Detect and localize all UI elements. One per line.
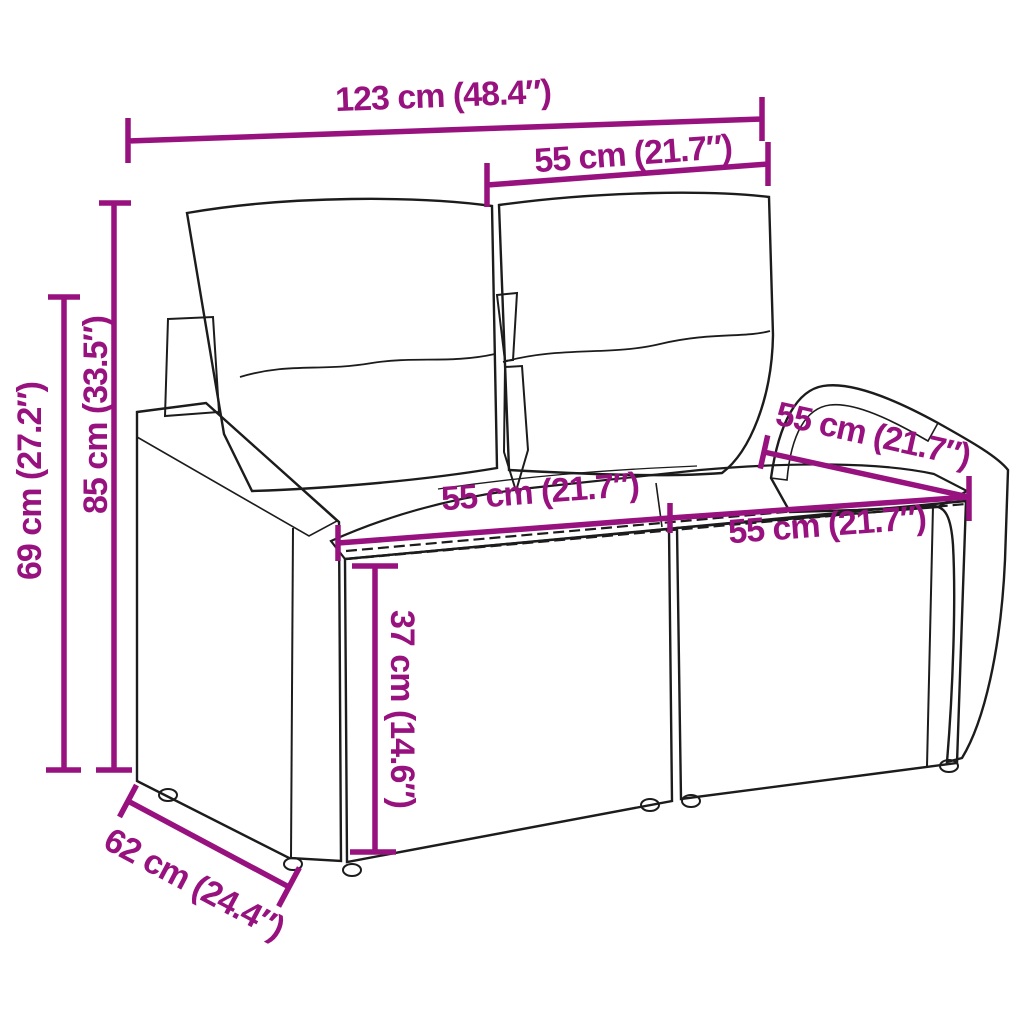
dimension-label-armrest-height: 69 cm (27.2″) [13,382,47,580]
back-cushion-right [499,193,773,475]
dimension-label-seat-height: 37 cm (14.6″) [385,610,419,808]
back-panel-strip-middle-top [497,293,517,361]
armrest-left-top-weave [137,403,337,536]
back-cushion-right-crease [503,331,770,362]
seat-panel-corner-post-line [927,506,933,766]
back-cushion-left-crease [240,354,495,377]
dimension-label-overall-width: 123 cm (48.4″) [334,75,551,117]
armrest-left-corner-line [291,528,293,857]
back-cushion-left [187,199,497,491]
back-cushions [187,193,773,491]
dim-line-armrest-height [46,297,81,770]
seat-front-panel-right [677,501,966,799]
product-dimension-diagram: 123 cm (48.4″) 55 cm (21.7″) 85 cm (33.5… [0,0,1024,1024]
dimension-label-overall-height: 85 cm (33.5″) [79,316,113,514]
armrest-left [137,403,341,861]
back-panel-strip-left [165,317,219,416]
